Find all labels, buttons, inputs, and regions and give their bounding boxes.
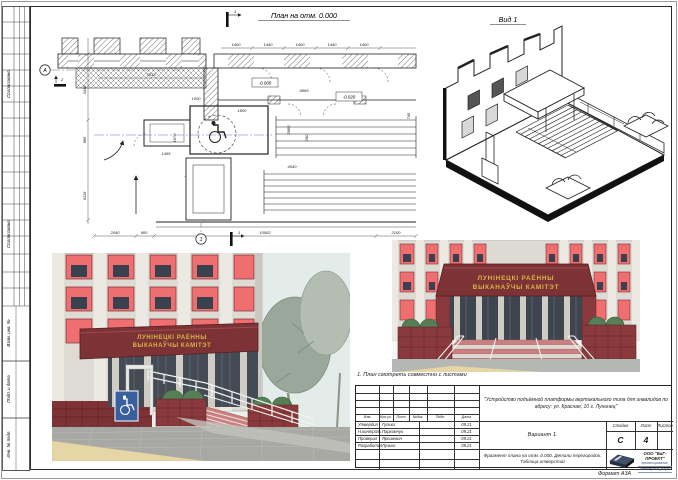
svg-text:6869: 6869 xyxy=(300,88,310,93)
tb-sheet-title: Фрагмент плана на отм. 0.000. Детали пер… xyxy=(481,450,604,468)
title-block: Изм. Кол.уч. Лист №док. Подп. Дата Утвер… xyxy=(355,385,672,468)
company-logo xyxy=(608,451,636,468)
building-sign-front-line1: ЛУНІНЕЦКІ РАЁННЫ xyxy=(478,274,555,282)
plan-vestibule xyxy=(186,106,268,220)
tb-date-0: 09.21 xyxy=(454,421,479,428)
company-name: ООО "БиГ-ПРОЕКТ" xyxy=(638,451,672,461)
drawing-sheet: Согласовано Согласовано Взам. инв. № Под… xyxy=(0,0,678,480)
tb-doc-title: "Устройство подъёмной платформы вертикал… xyxy=(481,387,671,420)
svg-text:1: 1 xyxy=(234,9,236,14)
entrance-front xyxy=(436,296,596,340)
svg-text:2880: 2880 xyxy=(286,125,291,136)
tb-role-3: Разработал xyxy=(356,442,379,449)
building-sign-front-line2: ВЫКАНАЎЧЫ КАМІТЭТ xyxy=(473,282,560,291)
tb-header-podp: Подп. xyxy=(427,414,454,421)
svg-text:1440: 1440 xyxy=(264,42,274,47)
svg-text:6115: 6115 xyxy=(82,191,87,200)
side-label-vzam: Взам. инв. № xyxy=(6,319,11,346)
svg-text:745: 745 xyxy=(406,112,411,119)
svg-text:1800: 1800 xyxy=(238,108,248,113)
svg-text:-0.000: -0.000 xyxy=(259,81,272,86)
plan-wall-top-right xyxy=(204,54,416,120)
side-label-agreed-1: Согласовано xyxy=(6,70,11,98)
tb-sheet-label: Лист xyxy=(635,421,657,431)
tb-date-3: 09.21 xyxy=(454,442,479,449)
svg-text:1070: 1070 xyxy=(172,133,177,143)
svg-text:985: 985 xyxy=(82,136,87,143)
tb-name-2: Ярошевич xyxy=(380,435,419,442)
section-flag-bottom: 1 xyxy=(230,230,244,246)
tb-stage-label: Стадия xyxy=(606,421,635,431)
tb-variant: Вариант 1. xyxy=(479,421,606,449)
floor-plan-drawing: План на отм. 0.000 1 А 2 xyxy=(36,8,418,246)
svg-text:1400: 1400 xyxy=(360,42,370,47)
tb-header-izm: Изм. xyxy=(356,414,379,421)
tb-role-1: Н.контроль xyxy=(356,428,379,435)
tb-sheets-label: Листов xyxy=(657,421,673,431)
tb-header-ndok: №док. xyxy=(409,414,427,421)
tb-name-1: Пархомчук xyxy=(380,428,419,435)
svg-text:1440: 1440 xyxy=(328,42,338,47)
svg-text:1000: 1000 xyxy=(192,96,202,101)
tb-stage-value: С xyxy=(606,431,635,449)
format-label: Формат А3А xyxy=(598,471,631,477)
render-front: ЛУНІНЕЦКІ РАЁННЫ ВЫКАНАЎЧЫ КАМІТЭТ xyxy=(392,240,640,372)
company-sub2: инженерные услуги xyxy=(638,467,672,473)
tb-name-0: Гулько xyxy=(380,421,419,428)
tb-date-2: 09.21 xyxy=(454,435,479,442)
building-sign-line2: ВЫКАНАЎЧЫ КАМІТЭТ xyxy=(133,341,212,349)
sheet-note: 1. План смотреть совместно с листами xyxy=(357,372,467,378)
svg-text:2: 2 xyxy=(60,77,64,82)
svg-text:290: 290 xyxy=(304,134,309,142)
entrance-canopy-front: ЛУНІНЕЦКІ РАЁННЫ ВЫКАНАЎЧЫ КАМІТЭТ xyxy=(436,264,596,296)
svg-text:7013: 7013 xyxy=(147,72,157,77)
svg-text:-0.020: -0.020 xyxy=(343,95,356,100)
wheelchair-icon xyxy=(210,121,227,143)
svg-text:2040: 2040 xyxy=(110,230,121,235)
svg-text:А: А xyxy=(42,68,47,74)
side-label-podp: Подп. и дата xyxy=(6,375,11,403)
building-sign-line1: ЛУНІНЕЦКІ РАЁННЫ xyxy=(137,334,207,341)
tb-header-koluch: Кол.уч. xyxy=(379,414,393,421)
svg-text:1495: 1495 xyxy=(162,151,172,156)
side-label-agreed-2: Согласовано xyxy=(6,220,11,248)
section-flag-left: 2 xyxy=(54,76,66,87)
svg-text:2100: 2100 xyxy=(391,230,402,235)
svg-text:1: 1 xyxy=(238,230,240,235)
svg-text:3418: 3418 xyxy=(82,85,87,95)
tb-role-2: Проверил xyxy=(356,435,379,442)
side-column: Согласовано Согласовано Взам. инв. № Под… xyxy=(2,6,30,471)
view1-title: Вид 1 xyxy=(499,15,518,24)
svg-text:900: 900 xyxy=(141,230,148,235)
axonometric-view-drawing: Вид 1 xyxy=(428,10,672,240)
section-flag-top: 1 xyxy=(226,9,241,27)
svg-text:1: 1 xyxy=(200,237,203,243)
svg-text:4540: 4540 xyxy=(288,164,298,169)
tb-role-0: Утвердил xyxy=(356,421,379,428)
side-label-inv: Инв. № подл. xyxy=(6,430,11,457)
svg-text:1400: 1400 xyxy=(296,42,306,47)
axis-1: 1 xyxy=(196,222,206,244)
render-perspective: ЛУНІНЕЦКІ РАЁННЫ ВЫКАНАЎЧЫ КАМІТЭТ xyxy=(52,253,350,461)
tb-date-1: 09.21 xyxy=(454,428,479,435)
svg-text:10582: 10582 xyxy=(259,230,271,235)
tb-sheet-value: 4 xyxy=(635,431,657,449)
svg-text:1400: 1400 xyxy=(232,42,242,47)
plan-arrows xyxy=(104,141,136,214)
tb-header-list: Лист xyxy=(393,414,409,421)
plan-title: План на отм. 0.000 xyxy=(271,11,337,20)
tb-name-3: Лузько xyxy=(380,442,419,449)
plan-wall-top-left xyxy=(58,38,206,88)
tb-header-data: Дата xyxy=(454,414,479,421)
